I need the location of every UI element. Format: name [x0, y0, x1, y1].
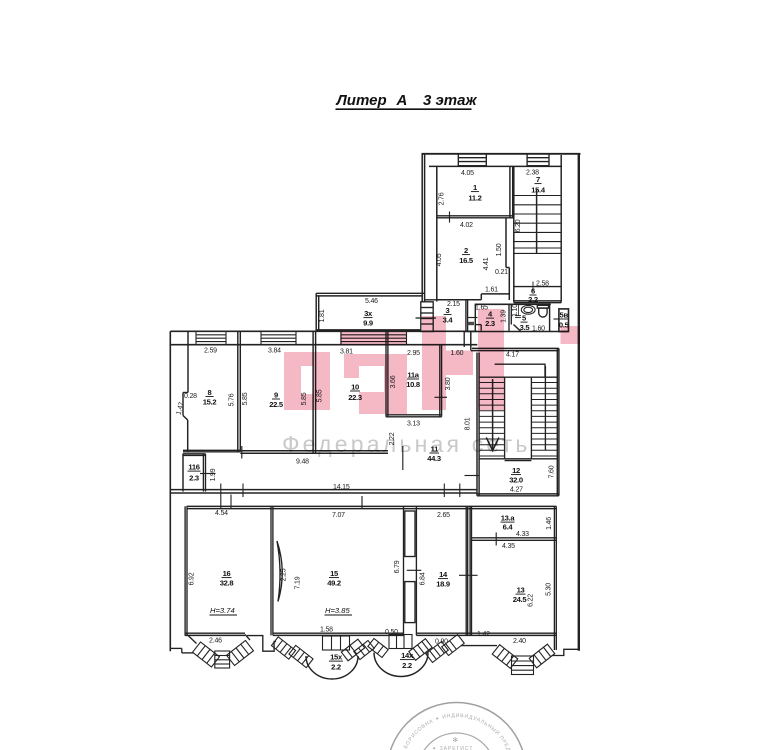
- svg-text:4.05: 4.05: [461, 170, 474, 177]
- svg-text:H=3.85: H=3.85: [325, 606, 350, 615]
- svg-text:1.42: 1.42: [477, 631, 490, 638]
- svg-text:А: А: [396, 92, 408, 109]
- svg-text:16: 16: [223, 569, 231, 578]
- svg-text:14x: 14x: [401, 651, 414, 660]
- svg-text:5.76: 5.76: [229, 393, 236, 406]
- svg-text:13.а: 13.а: [501, 514, 516, 523]
- svg-text:5.46: 5.46: [365, 298, 378, 305]
- svg-text:22.5: 22.5: [269, 400, 284, 409]
- svg-text:4.05: 4.05: [436, 253, 443, 266]
- svg-text:9.48: 9.48: [296, 459, 309, 466]
- svg-text:2.65: 2.65: [437, 512, 450, 519]
- svg-text:Федеральная сеть: Федеральная сеть: [282, 431, 531, 457]
- svg-text:7.07: 7.07: [332, 512, 345, 519]
- svg-text:6.22: 6.22: [528, 594, 535, 607]
- svg-text:2.25: 2.25: [281, 568, 288, 581]
- svg-text:3.80: 3.80: [445, 377, 452, 390]
- svg-text:9: 9: [274, 391, 278, 400]
- svg-text:0.28: 0.28: [184, 393, 197, 400]
- svg-text:15x: 15x: [330, 653, 343, 662]
- svg-text:8: 8: [208, 388, 212, 397]
- svg-text:8.01: 8.01: [465, 417, 472, 430]
- svg-text:1.99: 1.99: [210, 468, 217, 481]
- svg-text:5.85: 5.85: [242, 392, 249, 405]
- svg-text:10: 10: [351, 383, 359, 392]
- svg-text:6.79: 6.79: [394, 560, 401, 573]
- svg-text:6.20: 6.20: [515, 219, 522, 232]
- svg-text:✦ ЗАРЕГИСТ: ✦ ЗАРЕГИСТ: [432, 746, 473, 750]
- svg-text:1.81: 1.81: [319, 309, 326, 322]
- svg-text:Литер: Литер: [336, 92, 387, 109]
- svg-text:14: 14: [439, 570, 448, 579]
- svg-text:1.61: 1.61: [485, 287, 498, 294]
- svg-text:2.95: 2.95: [407, 350, 420, 357]
- svg-text:4.33: 4.33: [516, 531, 529, 538]
- svg-text:2.46: 2.46: [209, 638, 222, 645]
- svg-text:116: 116: [188, 463, 199, 472]
- svg-text:3.84: 3.84: [268, 348, 281, 355]
- svg-text:32.8: 32.8: [220, 578, 234, 587]
- svg-text:11а: 11а: [407, 371, 419, 380]
- svg-text:0.90: 0.90: [435, 639, 448, 646]
- svg-text:15.4: 15.4: [531, 186, 546, 195]
- svg-text:5в: 5в: [560, 311, 569, 320]
- svg-text:18.9: 18.9: [436, 579, 450, 588]
- svg-text:12: 12: [512, 466, 520, 475]
- svg-text:1.50: 1.50: [496, 243, 503, 256]
- svg-text:2.2: 2.2: [402, 661, 412, 670]
- svg-text:24.5: 24.5: [513, 595, 528, 604]
- svg-text:4.17: 4.17: [506, 352, 519, 359]
- svg-text:11.2: 11.2: [468, 194, 481, 203]
- svg-text:5.30: 5.30: [546, 583, 553, 596]
- svg-text:1.10: 1.10: [512, 304, 519, 317]
- svg-text:✻: ✻: [453, 736, 459, 744]
- svg-text:4.54: 4.54: [215, 510, 228, 517]
- svg-text:4.02: 4.02: [460, 222, 473, 229]
- svg-text:15.2: 15.2: [203, 398, 217, 407]
- svg-text:2.3: 2.3: [189, 474, 199, 483]
- svg-text:2.76: 2.76: [439, 192, 446, 205]
- svg-text:7.60: 7.60: [549, 465, 556, 478]
- svg-text:H=3.74: H=3.74: [210, 606, 235, 615]
- svg-text:49.2: 49.2: [327, 578, 341, 587]
- svg-text:3.13: 3.13: [407, 421, 420, 428]
- svg-text:6.4: 6.4: [503, 523, 514, 532]
- svg-text:16.5: 16.5: [459, 256, 474, 265]
- svg-text:10.8: 10.8: [406, 380, 420, 389]
- svg-text:2.59: 2.59: [204, 348, 217, 355]
- svg-text:3: 3: [446, 306, 450, 315]
- svg-text:9.9: 9.9: [363, 319, 373, 328]
- svg-text:2: 2: [464, 246, 468, 255]
- svg-text:7: 7: [536, 175, 540, 184]
- svg-text:3 этаж: 3 этаж: [423, 92, 477, 109]
- svg-text:32.0: 32.0: [509, 476, 523, 485]
- svg-text:3x: 3x: [364, 309, 373, 318]
- svg-text:3.5: 3.5: [520, 323, 531, 332]
- svg-text:2.2: 2.2: [331, 663, 341, 672]
- svg-text:4.27: 4.27: [510, 487, 523, 494]
- svg-text:4.35: 4.35: [502, 543, 515, 550]
- svg-text:1.58: 1.58: [320, 627, 333, 634]
- svg-text:14.15: 14.15: [333, 484, 350, 491]
- svg-text:7.19: 7.19: [295, 576, 302, 589]
- svg-text:4.41: 4.41: [483, 257, 490, 270]
- svg-text:0.21: 0.21: [495, 269, 508, 276]
- svg-text:13: 13: [517, 586, 525, 595]
- svg-text:6.92: 6.92: [189, 572, 196, 585]
- svg-text:15: 15: [330, 569, 339, 578]
- svg-text:.: .: [545, 442, 548, 453]
- svg-text:2.40: 2.40: [513, 638, 526, 645]
- svg-text:1.46: 1.46: [546, 517, 553, 530]
- svg-text:6.84: 6.84: [419, 572, 426, 585]
